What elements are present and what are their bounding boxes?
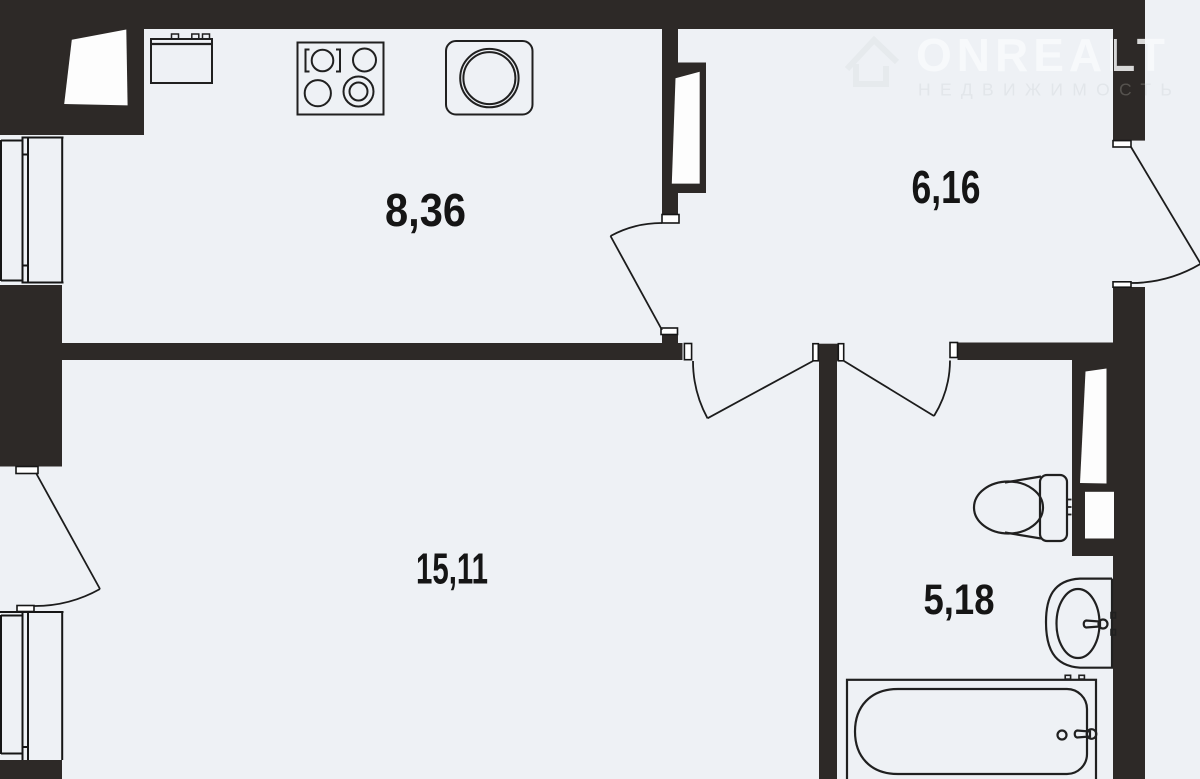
svg-text:15,11: 15,11 [416, 545, 488, 594]
svg-text:5,18: 5,18 [924, 576, 995, 624]
svg-text:6,16: 6,16 [912, 161, 981, 213]
svg-text:8,36: 8,36 [385, 184, 466, 236]
